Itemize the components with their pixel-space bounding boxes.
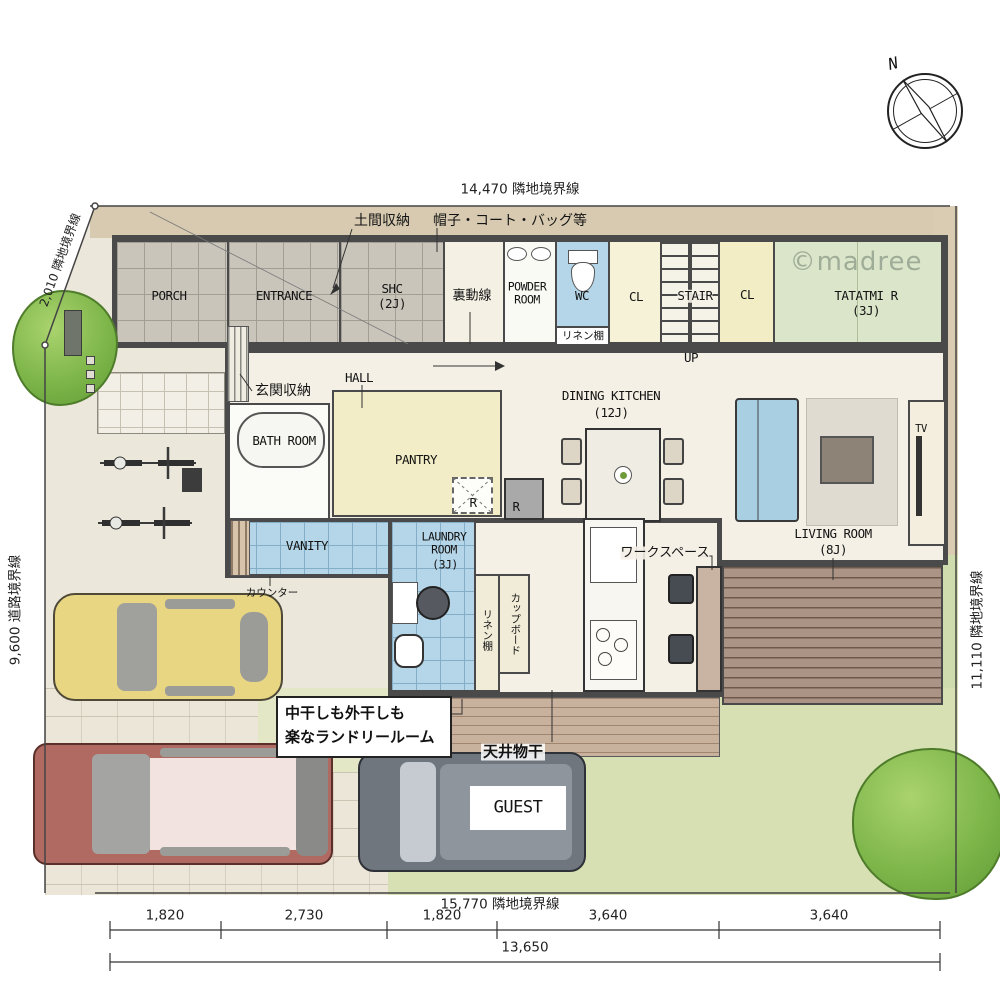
sofa-seat-line <box>757 400 759 520</box>
laundry-sink <box>394 634 424 668</box>
bike-crate <box>182 468 202 492</box>
dining-chair-4 <box>663 478 684 505</box>
car-red-windshield <box>92 754 150 854</box>
label-powder-2: ROOM <box>514 294 540 306</box>
boundary-left-label: 9,600 道路境界線 <box>9 555 23 665</box>
kitchen-stove <box>590 620 637 680</box>
boundary-right-label: 11,110 隣地境界線 <box>971 570 985 689</box>
label-laundry-size: (3J) <box>432 559 458 571</box>
label-living: LIVING ROOM <box>794 528 871 541</box>
fridge-solid <box>504 478 544 520</box>
workspace-chair-1 <box>668 574 694 604</box>
stove-burner-2 <box>614 638 628 652</box>
car-red-side-window-bottom <box>160 847 290 856</box>
label-vanity: VANITY <box>286 540 328 553</box>
label-genkan-storage: 玄関収納 <box>255 384 311 398</box>
dim-segment-1: 1,820 <box>146 909 185 923</box>
label-tatami-size: (3J) <box>852 305 880 318</box>
label-wc-linen: リネン棚 <box>562 331 604 342</box>
stove-burner-1 <box>596 628 610 642</box>
label-cupboard: カップボード <box>510 593 521 656</box>
label-laundry-1: LAUNDRY <box>422 531 467 543</box>
boundary-top-label: 14,470 隣地境界線 <box>460 183 579 197</box>
stepping-stone-2 <box>86 370 95 379</box>
label-fridge-dashed: R <box>469 497 476 510</box>
watermark: ©madree <box>790 249 923 275</box>
dim-segment-3: 1,820 <box>423 909 462 923</box>
car-yellow-side-window-bottom <box>165 686 235 696</box>
dim-segment-2: 2,730 <box>285 909 324 923</box>
label-fridge-solid: R <box>512 501 519 514</box>
label-stair: STAIR <box>677 290 712 303</box>
label-bath: BATH ROOM <box>252 435 315 448</box>
compass-north-label: N <box>887 55 900 73</box>
powder-sink-1 <box>507 247 527 261</box>
label-guest-car: GUEST <box>494 800 543 817</box>
car-red-rear <box>296 752 328 856</box>
dining-chair-2 <box>561 478 582 505</box>
laundry-note-line2: 楽なランドリールーム <box>285 725 443 749</box>
label-pantry: PANTRY <box>395 454 437 467</box>
vanity-counter-hatch <box>230 520 250 576</box>
stepping-stone-3 <box>86 384 95 393</box>
dining-chair-1 <box>561 438 582 465</box>
genkan-cabinet <box>227 326 249 402</box>
car-yellow-side-window-top <box>165 599 235 609</box>
wood-deck-lower <box>428 697 720 757</box>
coffee-table <box>820 436 874 484</box>
stepping-stone-1 <box>86 356 95 365</box>
label-hall: HALL <box>345 372 373 385</box>
label-shc-size: (2J) <box>378 298 406 311</box>
compass-icon <box>888 74 962 148</box>
label-ceiling-drying: 天井物干 <box>481 744 545 761</box>
car-yellow-rear-window <box>240 612 268 682</box>
label-entrance: ENTRANCE <box>256 290 312 303</box>
dim-total: 13,650 <box>501 941 548 955</box>
floor-plan-canvas: 14,470 隣地境界線 2,010 隣地境界線 9,600 道路境界線 11,… <box>0 0 1000 1000</box>
label-cl2: CL <box>740 289 754 302</box>
label-counter: カウンター <box>246 588 299 599</box>
label-living-size: (8J) <box>819 544 847 557</box>
label-workspace: ワークスペース <box>620 547 709 560</box>
laundry-counter <box>392 582 418 624</box>
label-porch: PORCH <box>151 290 186 303</box>
sofa <box>735 398 799 522</box>
label-tatami: TATATMI R <box>834 290 897 303</box>
label-powder-1: POWDER <box>508 281 547 293</box>
workspace-desk <box>696 566 722 692</box>
tv-screen <box>916 436 922 516</box>
label-shc: SHC <box>381 283 402 296</box>
laundry-note-line1: 中干しも外干しも <box>285 701 443 725</box>
wood-deck <box>722 565 943 705</box>
label-laundry-linen: リネン棚 <box>482 609 493 651</box>
dim-segment-5: 3,640 <box>810 909 849 923</box>
dim-segment-4: 3,640 <box>589 909 628 923</box>
label-cl1: CL <box>629 291 643 304</box>
label-laundry-2: ROOM <box>431 544 457 556</box>
workspace-chair-2 <box>668 634 694 664</box>
car-guest-windshield <box>400 762 436 862</box>
label-wc: WC <box>575 290 589 303</box>
entry-approach-tiles <box>97 372 225 434</box>
powder-sink-2 <box>531 247 551 261</box>
laundry-note-box: 中干しも外干しも 楽なランドリールーム <box>276 696 452 758</box>
label-hat-coat-bag: 帽子・コート・バッグ等 <box>433 214 587 228</box>
stove-burner-3 <box>598 652 612 666</box>
car-yellow-windshield <box>117 603 157 691</box>
mailbox <box>64 310 82 356</box>
label-tv: TV <box>915 424 927 435</box>
label-dining-size: (12J) <box>593 407 628 420</box>
label-back-corridor: 裏動線 <box>451 290 492 303</box>
dining-plant-leaf <box>620 472 627 479</box>
label-dining: DINING KITCHEN <box>562 390 660 403</box>
label-up: UP <box>684 352 698 365</box>
washing-machine <box>416 586 450 620</box>
label-doma-storage: 土間収納 <box>354 214 410 228</box>
car-red-side-window-top <box>160 748 290 757</box>
dining-chair-3 <box>663 438 684 465</box>
car-red-roof <box>150 758 298 850</box>
